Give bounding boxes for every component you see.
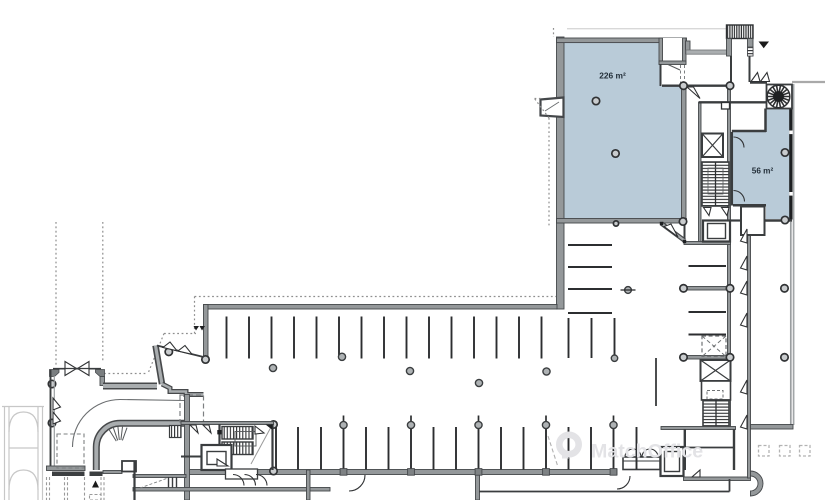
svg-text:56 m²: 56 m² xyxy=(752,167,774,176)
svg-text:226 m²: 226 m² xyxy=(599,71,626,81)
svg-text:MatchOffice: MatchOffice xyxy=(591,441,703,463)
